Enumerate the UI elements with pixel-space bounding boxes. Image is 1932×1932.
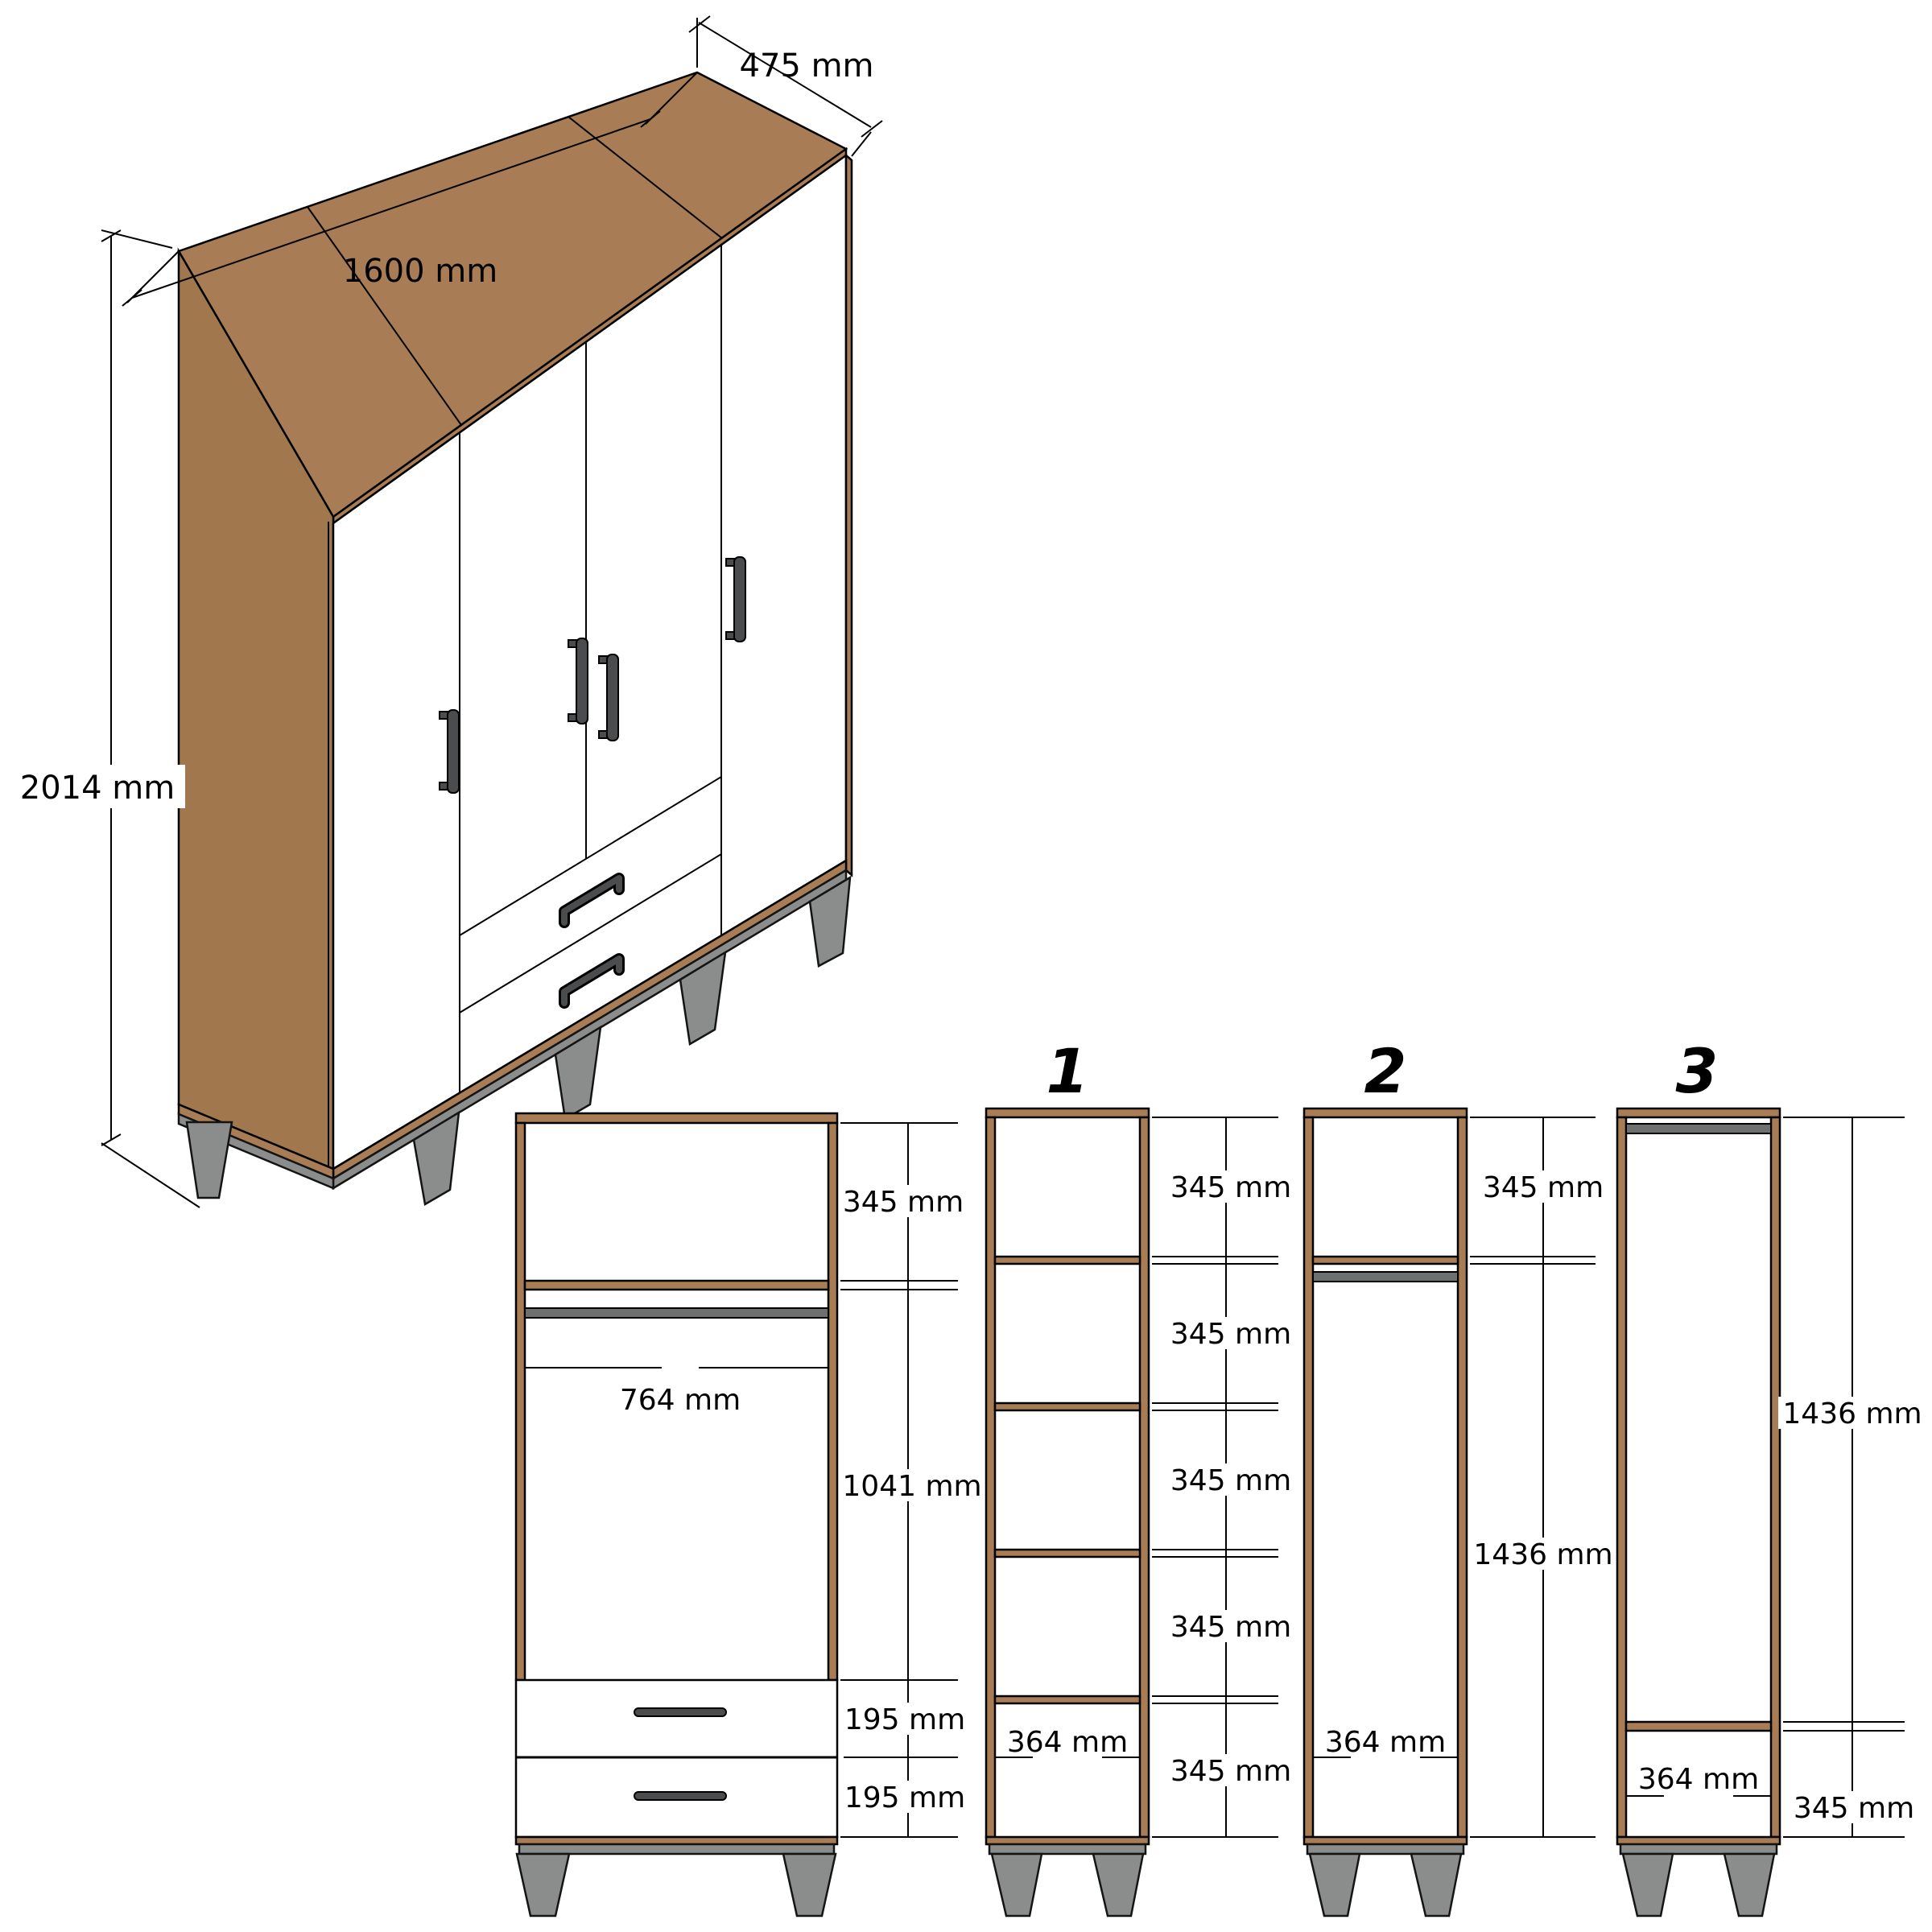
iso-height-label: 2014 mm (20, 770, 175, 807)
section-column-1: 1 364 mm (986, 1035, 1292, 1916)
section-column-3: 3 364 mm 1436 mm 345 mm (1617, 1035, 1926, 1916)
mid-legs (517, 1854, 836, 1916)
col1-top-frame (986, 1108, 1149, 1117)
col1-shelf-label-1: 345 mm (1170, 1171, 1291, 1204)
col2-top-frame (1304, 1108, 1467, 1117)
col3-top-frame (1617, 1108, 1780, 1117)
isometric-view: 2014 mm 1600 mm 475 mm (10, 16, 882, 1207)
col1-right-frame (1140, 1117, 1149, 1837)
mid-drawer-top-label: 195 mm (844, 1703, 965, 1736)
col1-left-frame (986, 1117, 995, 1837)
col2-shelf (1313, 1257, 1458, 1264)
col2-hanging-label: 1436 mm (1473, 1538, 1612, 1571)
wardrobe-diagram: 2014 mm 1600 mm 475 mm (0, 0, 1932, 1932)
mid-hanging-label: 1041 mm (842, 1470, 981, 1503)
col3-right-frame (1771, 1117, 1780, 1837)
iso-right-edge (846, 155, 852, 875)
column-3-number: 3 (1676, 1035, 1719, 1107)
col2-width-label: 364 mm (1325, 1726, 1446, 1759)
column-1-number: 1 (1046, 1035, 1089, 1107)
mid-top-label: 345 mm (843, 1186, 964, 1219)
mid-plinth (519, 1844, 834, 1854)
mid-right-frame (828, 1123, 837, 1680)
col3-dim-bracket: 1436 mm 345 mm (1778, 1117, 1926, 1837)
col1-shelves (995, 1257, 1140, 1703)
col2-plinth (1307, 1844, 1463, 1854)
col1-plinth (989, 1844, 1146, 1854)
mid-dim-inner-width: 764 mm (525, 1364, 828, 1417)
col1-dim-bracket: 345 mm 345 mm 345 mm 345 mm 345 mm (1152, 1117, 1292, 1837)
col2-top-label: 345 mm (1483, 1171, 1604, 1204)
col3-plinth (1620, 1844, 1777, 1854)
col3-bottom-label: 345 mm (1794, 1792, 1914, 1825)
col3-hanging-label: 1436 mm (1782, 1397, 1922, 1430)
col3-legs (1623, 1854, 1774, 1916)
mid-hanging-rod (525, 1308, 828, 1318)
col2-bottom-band (1304, 1837, 1467, 1844)
col3-width-label: 364 mm (1638, 1763, 1759, 1796)
iso-dim-height: 2014 mm (10, 230, 200, 1207)
col2-right-frame (1458, 1117, 1467, 1837)
col1-shelf-label-4: 345 mm (1170, 1611, 1291, 1644)
mid-inner-width-label: 764 mm (620, 1384, 741, 1417)
col1-shelf-label-5: 345 mm (1170, 1755, 1291, 1788)
mid-dim-bracket: 345 mm 1041 mm 195 mm 195 mm (839, 1123, 987, 1837)
iso-width-label: 1600 mm (343, 253, 497, 290)
col1-shelf-label-2: 345 mm (1170, 1318, 1291, 1351)
mid-drawer-handle-top (634, 1708, 726, 1716)
mid-top-frame (516, 1113, 837, 1123)
col3-left-frame (1617, 1117, 1626, 1837)
col2-legs (1310, 1854, 1461, 1916)
col2-hanging-rod (1313, 1272, 1458, 1282)
mid-drawer-bottom-label: 195 mm (844, 1781, 965, 1814)
col1-bottom-band (986, 1837, 1149, 1844)
mid-drawer-handle-bottom (634, 1792, 726, 1800)
section-column-2: 2 364 mm 345 mm 1436 mm (1304, 1035, 1617, 1916)
col2-dim-bracket: 345 mm 1436 mm (1469, 1117, 1617, 1837)
col3-hanging-rod (1626, 1124, 1771, 1133)
col2-left-frame (1304, 1117, 1313, 1837)
col1-dim-width: 364 mm (995, 1726, 1140, 1766)
col2-dim-width: 364 mm (1313, 1726, 1458, 1766)
mid-bottom-band (516, 1837, 837, 1844)
section-middle: 764 mm 345 mm 1041 mm 195 mm (516, 1113, 987, 1916)
col1-width-label: 364 mm (1007, 1726, 1128, 1759)
mid-shelf (525, 1281, 828, 1290)
mid-left-frame (516, 1123, 525, 1680)
col1-legs (992, 1854, 1143, 1916)
technical-drawing-page: 2014 mm 1600 mm 475 mm (0, 0, 1932, 1932)
col3-shelf (1626, 1722, 1771, 1731)
column-2-number: 2 (1364, 1035, 1407, 1107)
col3-dim-width: 364 mm (1626, 1763, 1771, 1805)
col1-shelf-label-3: 345 mm (1170, 1464, 1291, 1497)
iso-depth-label: 475 mm (740, 47, 874, 85)
col3-bottom-band (1617, 1837, 1780, 1844)
